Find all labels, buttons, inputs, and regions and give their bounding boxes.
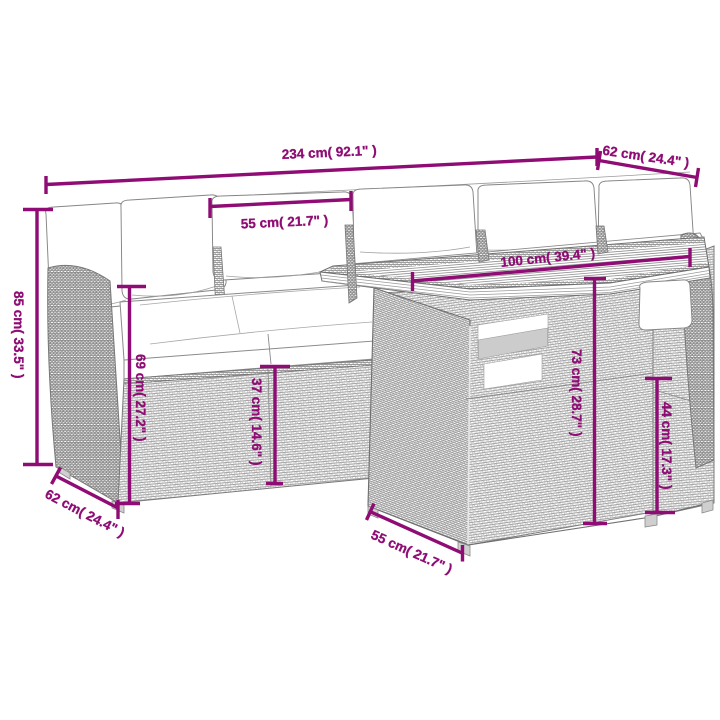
- svg-text:37 cm( 14.6" ): 37 cm( 14.6" ): [249, 378, 264, 465]
- svg-text:85 cm( 33.5" ): 85 cm( 33.5" ): [11, 291, 26, 378]
- svg-text:69 cm( 27.2" ): 69 cm( 27.2" ): [133, 354, 148, 441]
- svg-text:73 cm( 28.7" ): 73 cm( 28.7" ): [569, 349, 584, 436]
- svg-text:44 cm( 17.3" ): 44 cm( 17.3" ): [659, 402, 674, 489]
